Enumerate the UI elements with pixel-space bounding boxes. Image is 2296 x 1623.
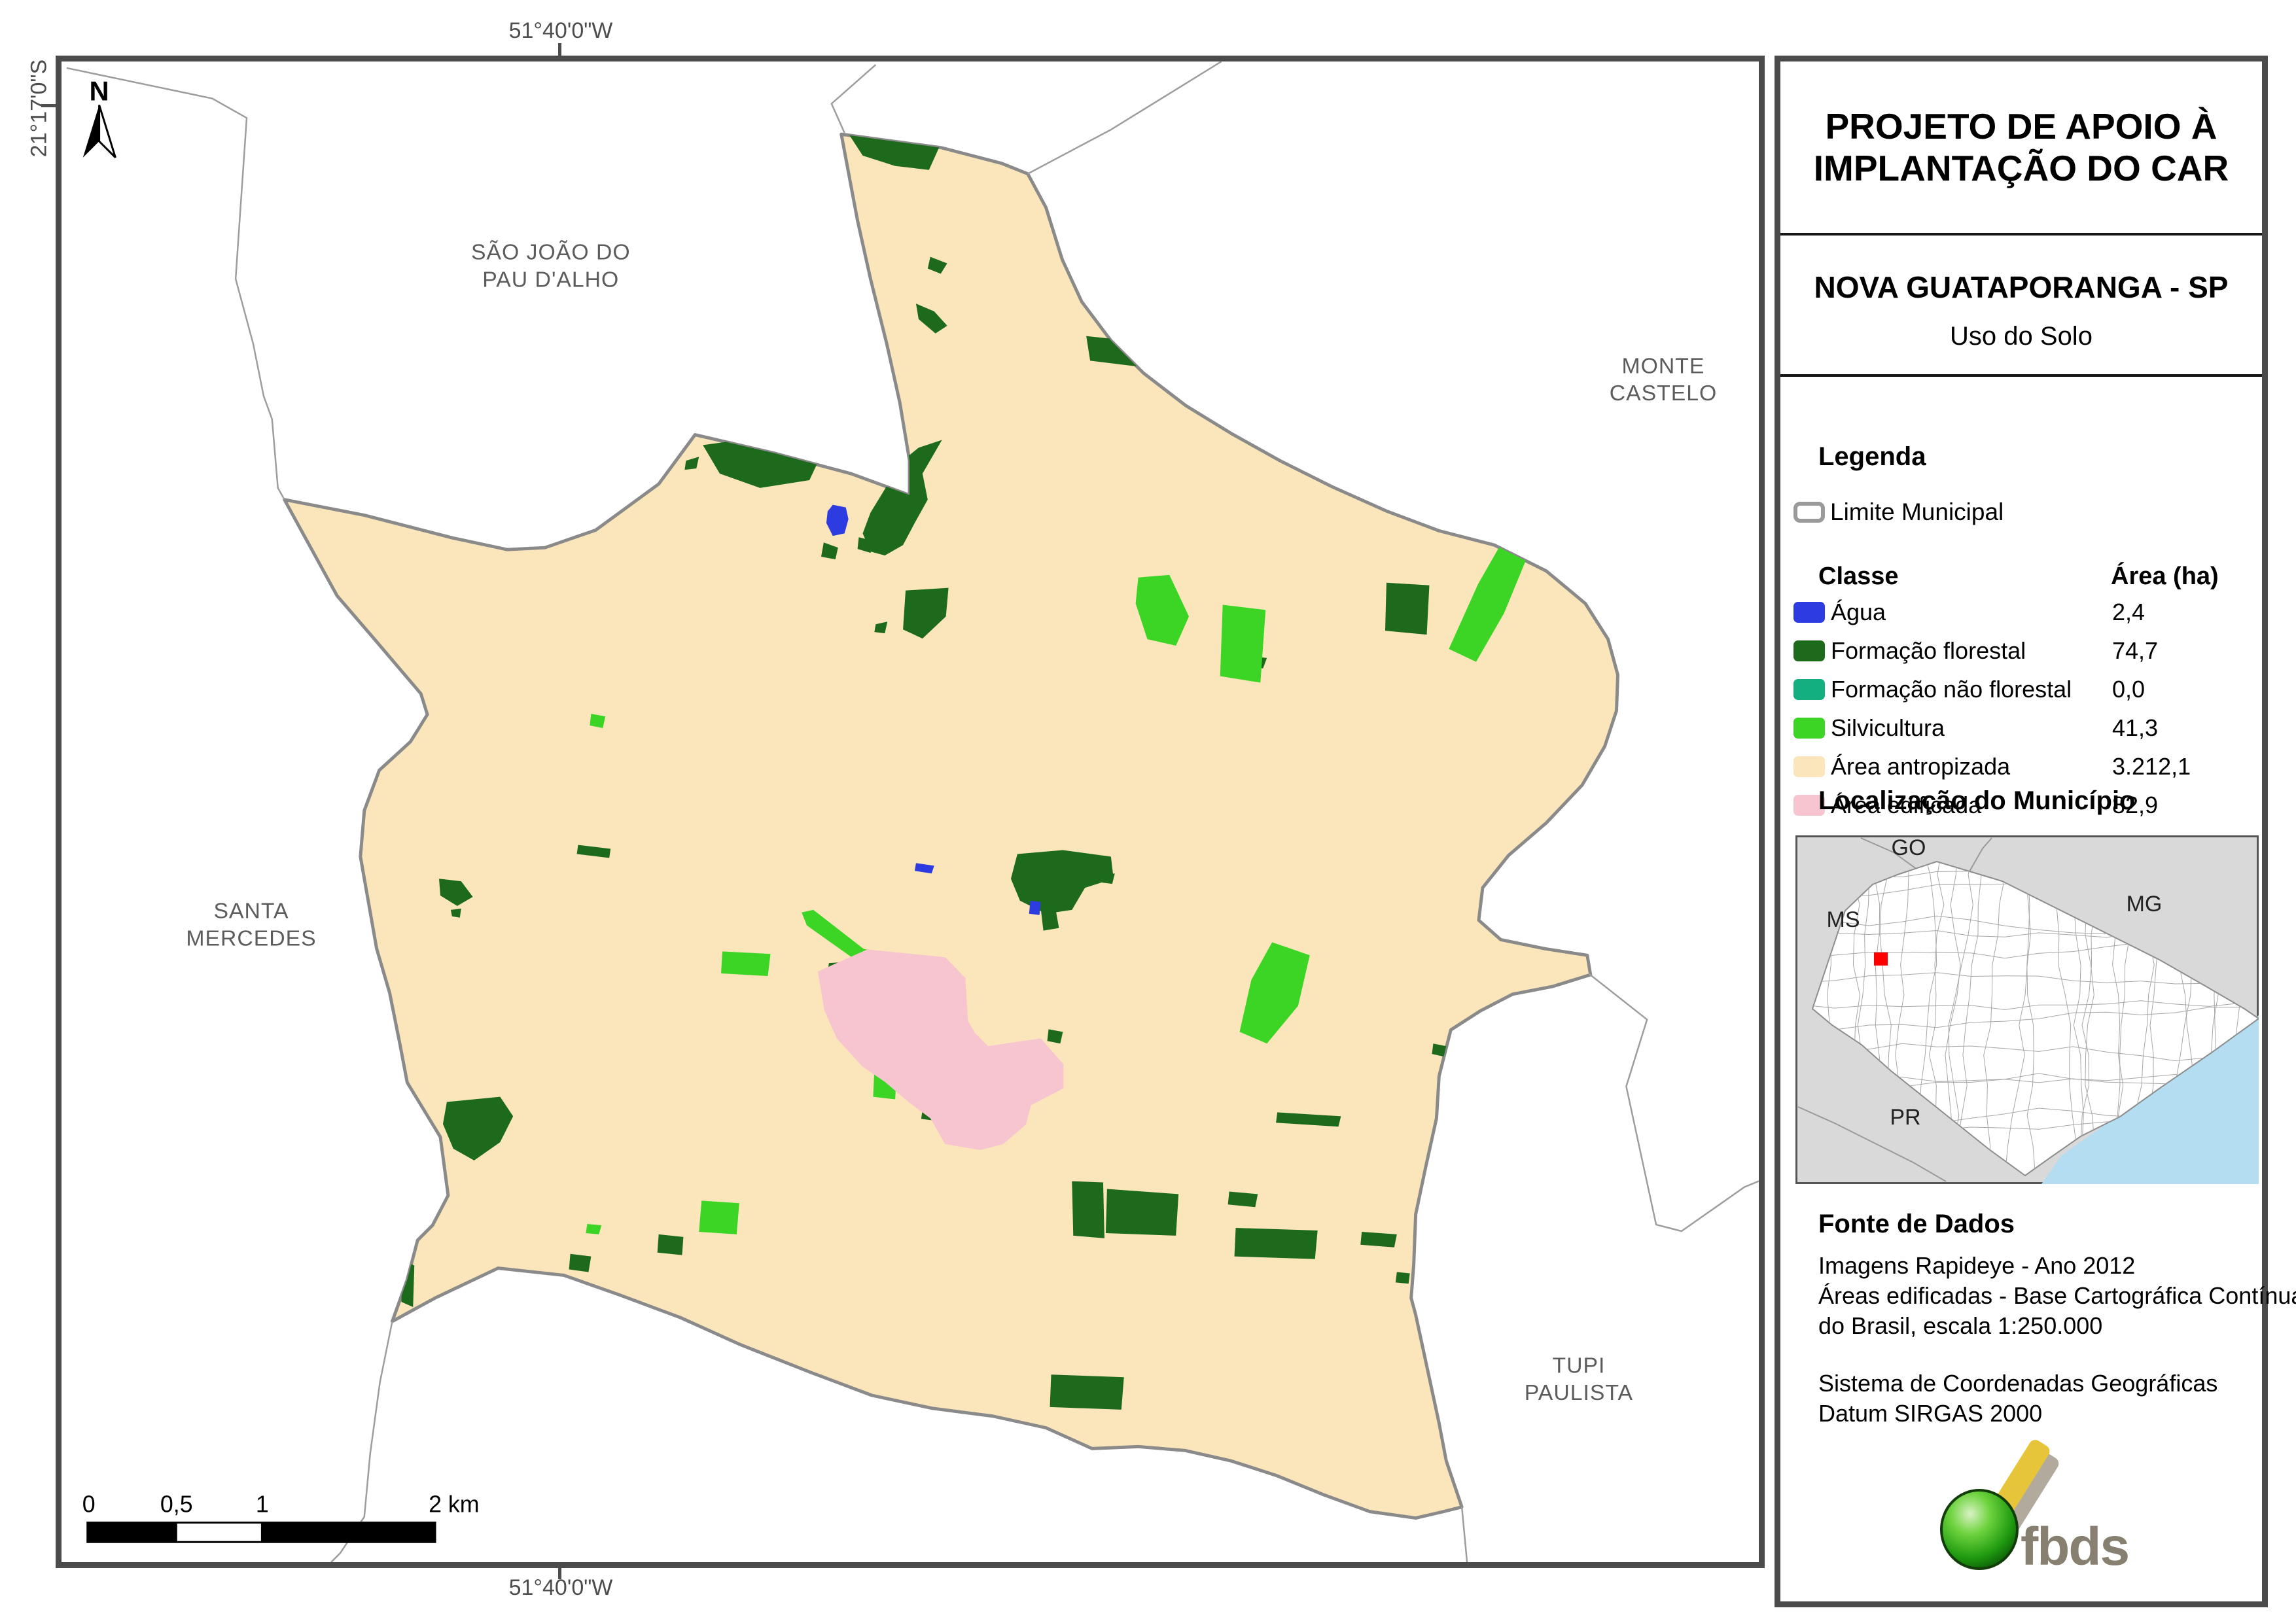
source-line: Imagens Rapideye - Ano 2012: [1818, 1252, 2135, 1280]
project-title-line1: PROJETO DE APOIO À: [1825, 105, 2217, 147]
legend-area-value: 74,7: [2112, 637, 2158, 665]
florestal-patch: [1385, 583, 1430, 635]
state-label-ms: MS: [1827, 907, 1860, 932]
legend-swatch-florestal: [1793, 640, 1825, 661]
silvicultura-patch: [1220, 604, 1266, 682]
neighbor-boundary-line: [1028, 61, 1222, 174]
legend-swatch-nao_florestal: [1793, 679, 1825, 700]
fbds-logo: fbds: [1924, 1400, 2225, 1596]
municipality-marker: [1874, 952, 1888, 966]
legend-row: Água2,4: [1793, 599, 2252, 625]
tick-left: [41, 104, 56, 107]
map-layers: SÃO JOÃO DOPAU D'ALHOMONTECASTELOSANTAME…: [67, 61, 1759, 1562]
source-line: do Brasil, escala 1:250.000: [1818, 1312, 2102, 1340]
legend-class-label: Área antropizada: [1831, 753, 2010, 780]
source-line: Áreas edificadas - Base Cartográfica Con…: [1818, 1282, 2296, 1310]
legend-row: Silvicultura41,3: [1793, 715, 2252, 741]
florestal-patch: [658, 1234, 684, 1255]
silvicultura-patch: [699, 1200, 739, 1234]
silvicultura-patch: [721, 951, 770, 976]
coord-label-top: 51°40'0"W: [482, 18, 639, 44]
subtitle-box: NOVA GUATAPORANGA - SP Uso do Solo: [1780, 236, 2262, 377]
scale-05: 0,5: [160, 1492, 193, 1518]
florestal-patch: [1396, 1272, 1410, 1283]
state-label-pr: PR: [1890, 1105, 1920, 1130]
florestal-patch: [1235, 1228, 1318, 1259]
legend-area-value: 3.212,1: [2112, 753, 2191, 780]
legend-class-label: Água: [1831, 599, 1886, 626]
silvicultura-patch: [586, 1224, 601, 1234]
agua-patch: [1029, 901, 1041, 915]
legend-limite-row: Limite Municipal: [1793, 498, 2004, 526]
north-arrow-label: N: [90, 76, 109, 107]
florestal-patch: [1106, 1189, 1178, 1235]
tick-top: [558, 43, 561, 56]
legend-class-label: Formação florestal: [1831, 637, 2026, 665]
neighbor-label: MONTECASTELO: [1610, 353, 1718, 406]
municipality-boundary: [285, 134, 1618, 1518]
florestal-patch: [1072, 1181, 1104, 1238]
title-box: PROJETO DE APOIO À IMPLANTAÇÃO DO CAR: [1780, 61, 2262, 236]
source-heading: Fonte de Dados: [1818, 1210, 2015, 1239]
limite-municipal-swatch: [1793, 502, 1825, 523]
neighbor-boundary-line: [1589, 973, 1759, 1231]
source-line: Sistema de Coordenadas Geográficas: [1818, 1370, 2217, 1397]
legend-swatch-antropizada: [1793, 756, 1825, 777]
legend-heading: Legenda: [1818, 442, 1926, 472]
map-theme: Uso do Solo: [1780, 322, 2262, 351]
project-title-line2: IMPLANTAÇÃO DO CAR: [1814, 147, 2229, 189]
florestal-patch: [401, 1261, 414, 1307]
florestal-patch: [386, 689, 399, 701]
logo-sphere: [1941, 1490, 2017, 1569]
coord-label-left: 21°17'0"S: [27, 30, 52, 187]
legend-class-label: Silvicultura: [1831, 714, 1945, 742]
florestal-patch: [1228, 1191, 1258, 1207]
neighbor-label: SÃO JOÃO DOPAU D'ALHO: [471, 240, 631, 292]
florestal-patch: [451, 909, 461, 918]
tick-bottom: [558, 1568, 561, 1579]
florestal-patch: [1050, 1374, 1124, 1410]
scale-1: 1: [256, 1492, 269, 1518]
legend-row: Área antropizada3.212,1: [1793, 754, 2252, 780]
logo-text: fbds: [2021, 1517, 2128, 1577]
legend-area-value: 2,4: [2112, 599, 2145, 626]
municipality-name: NOVA GUATAPORANGA - SP: [1780, 270, 2262, 305]
neighbor-label: SANTAMERCEDES: [186, 899, 316, 951]
north-arrow-icon: N: [83, 76, 116, 158]
neighbor-label: TUPIPAULISTA: [1525, 1353, 1633, 1405]
state-locator-map: GO MS MG PR: [1795, 835, 2259, 1184]
legend-row: Formação florestal74,7: [1793, 638, 2252, 664]
limite-municipal-label: Limite Municipal: [1830, 498, 2004, 526]
state-label-mg: MG: [2127, 892, 2163, 916]
scale-0: 0: [82, 1492, 96, 1518]
neighbor-boundary-line: [832, 65, 876, 133]
florestal-patch: [569, 1254, 592, 1272]
info-panel: PROJETO DE APOIO À IMPLANTAÇÃO DO CAR NO…: [1775, 56, 2268, 1607]
legend-col-classe: Classe: [1818, 563, 1899, 591]
legend-swatch-silvicultura: [1793, 718, 1825, 739]
legend-area-value: 41,3: [2112, 714, 2158, 742]
neighbor-boundary-line: [1462, 1507, 1467, 1562]
land-use-map: SÃO JOÃO DOPAU D'ALHOMONTECASTELOSANTAME…: [62, 61, 1759, 1562]
florestal-patch: [1360, 1232, 1397, 1248]
legend-class-label: Formação não florestal: [1831, 676, 2072, 703]
map-panel: SÃO JOÃO DOPAU D'ALHOMONTECASTELOSANTAME…: [56, 56, 1765, 1568]
legend-area-value: 0,0: [2112, 676, 2145, 703]
scale-2km: 2 km: [429, 1492, 479, 1518]
locator-heading: Localização do Município: [1818, 786, 2136, 816]
scale-bar: 0 0,5 1 2 km: [82, 1492, 480, 1543]
legend-row: Formação não florestal0,0: [1793, 676, 2252, 703]
state-label-go: GO: [1892, 835, 1926, 860]
legend-col-area: Área (ha): [2111, 563, 2219, 591]
legend-swatch-agua: [1793, 602, 1825, 623]
